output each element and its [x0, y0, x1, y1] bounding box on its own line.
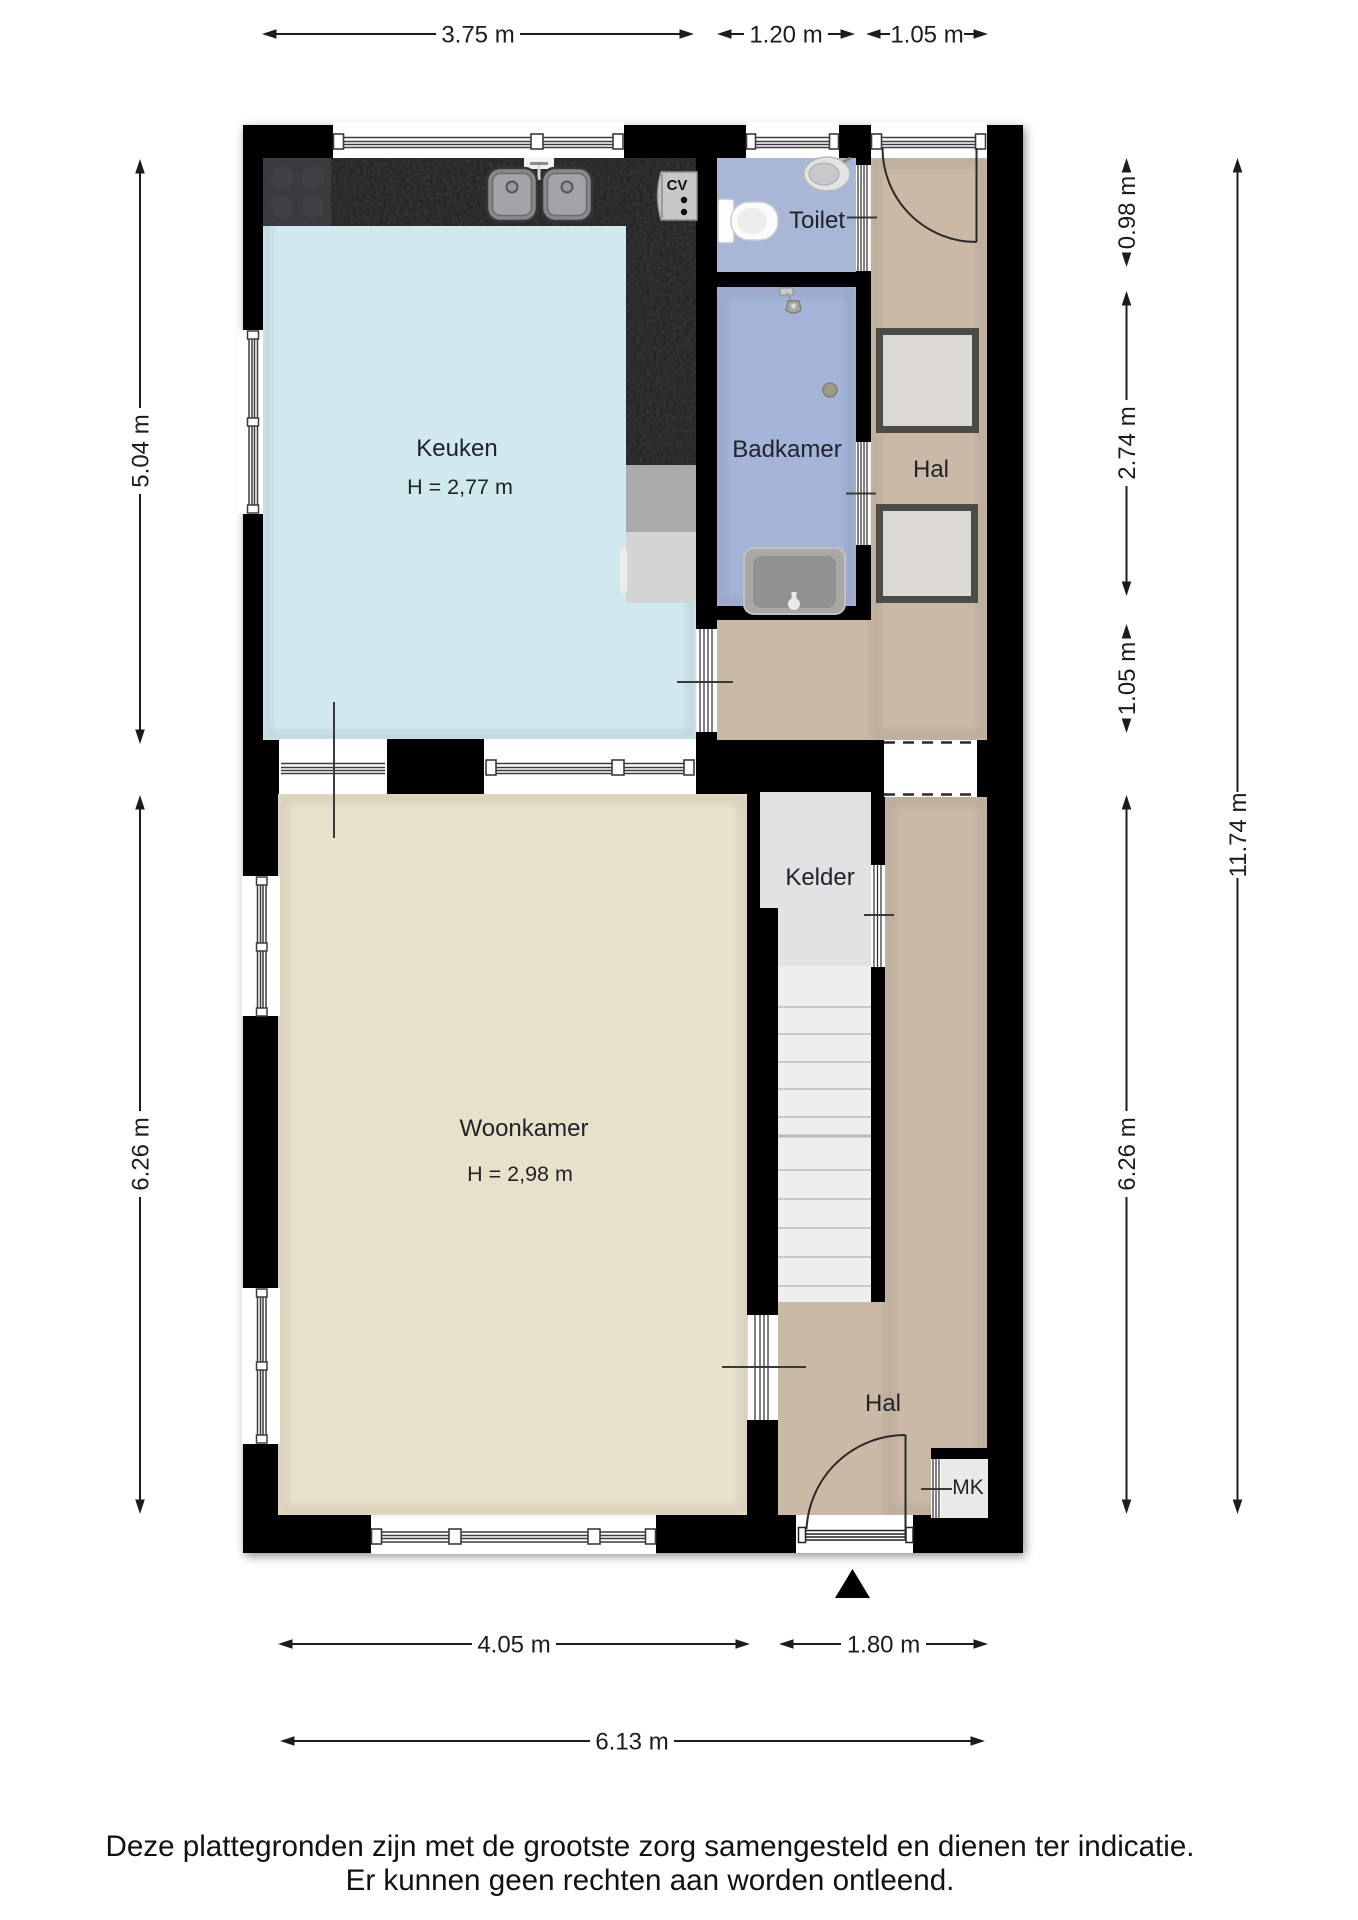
svg-text:Deze plattegronden zijn met de: Deze plattegronden zijn met de grootste … [105, 1830, 1194, 1863]
svg-text:1.05 m: 1.05 m [1114, 642, 1141, 715]
svg-text:5.04 m: 5.04 m [128, 414, 155, 487]
svg-text:6.13 m: 6.13 m [595, 1729, 668, 1756]
svg-text:11.74 m: 11.74 m [1225, 793, 1252, 878]
svg-text:Er kunnen geen rechten aan wor: Er kunnen geen rechten aan worden ontlee… [346, 1864, 955, 1897]
svg-text:Woonkamer: Woonkamer [460, 1115, 589, 1142]
svg-text:6.26 m: 6.26 m [1114, 1117, 1141, 1190]
svg-text:Kelder: Kelder [785, 864, 854, 891]
svg-text:3.75 m: 3.75 m [441, 22, 514, 49]
svg-text:Keuken: Keuken [416, 435, 497, 462]
svg-text:Badkamer: Badkamer [732, 436, 841, 463]
svg-text:1.80 m: 1.80 m [847, 1632, 920, 1659]
svg-text:0.98 m: 0.98 m [1114, 176, 1141, 249]
svg-text:Hal: Hal [865, 1390, 901, 1417]
svg-text:Hal: Hal [913, 456, 949, 483]
svg-text:H = 2,77 m: H = 2,77 m [407, 475, 513, 499]
svg-text:2.74 m: 2.74 m [1114, 406, 1141, 479]
svg-text:H = 2,98 m: H = 2,98 m [467, 1162, 573, 1186]
svg-text:1.20 m: 1.20 m [749, 22, 822, 49]
svg-text:4.05 m: 4.05 m [477, 1632, 550, 1659]
svg-text:1.05 m: 1.05 m [890, 22, 963, 49]
svg-text:MK: MK [952, 1476, 984, 1499]
svg-text:CV: CV [667, 177, 688, 194]
svg-text:6.26 m: 6.26 m [128, 1117, 155, 1190]
svg-text:Toilet: Toilet [789, 207, 845, 234]
